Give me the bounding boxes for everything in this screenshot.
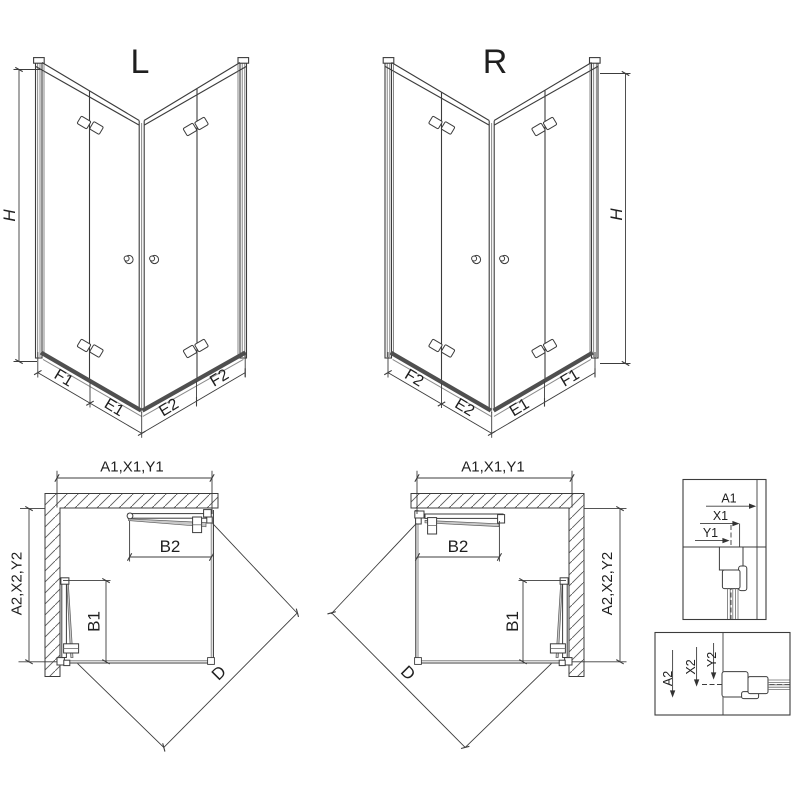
iso-view-left: L H F1 E1 E2 F2 — [0, 43, 249, 438]
iso-right-hinges — [428, 116, 557, 358]
plan-right-b2-label: B2 — [448, 537, 469, 556]
iso-view-right: R H F2 E2 E1 F1 — [383, 43, 630, 438]
iso-right-frame — [383, 58, 600, 417]
iso-left-hinges — [77, 116, 209, 358]
iso-right-title: R — [483, 43, 508, 81]
plan-left-b1-label: B1 — [85, 611, 104, 632]
plan-left-side-dim-label: A2,X2,Y2 — [9, 552, 26, 615]
plan-right-side-dim-label: A2,X2,Y2 — [599, 552, 616, 615]
detail-top-y1-label: Y1 — [703, 526, 718, 540]
detail-bottom-x2-label: X2 — [684, 659, 698, 674]
detail-bottom-a2-label: A2 — [661, 671, 675, 686]
detail-top-x1-label: X1 — [713, 509, 728, 523]
plan-left-top-dim-label: A1,X1,Y1 — [100, 458, 163, 475]
plan-view-right: A1,X1,Y1 A2,X2,Y2 B2 B1 D — [327, 458, 626, 748]
detail-box-top: A1 X1 Y1 — [683, 480, 766, 620]
shower-enclosure-technical-drawing: L H F1 E1 E2 F2 — [0, 0, 800, 800]
detail-bottom-y2-label: Y2 — [705, 652, 719, 667]
iso-left-height-label: H — [0, 209, 19, 222]
plan-right-diagonal-label: D — [397, 662, 419, 684]
plan-left-diagonal-label: D — [208, 662, 230, 684]
plan-right-enclosure — [415, 510, 569, 664]
plan-right-top-dim-label: A1,X1,Y1 — [461, 458, 524, 475]
plan-view-left: A1,X1,Y1 A2,X2,Y2 B2 B1 D — [9, 458, 299, 751]
detail-box-bottom: A2 X2 Y2 — [655, 633, 790, 716]
plan-left-b2-label: B2 — [160, 537, 181, 556]
iso-right-handles — [472, 255, 509, 263]
drawing-canvas: L H F1 E1 E2 F2 — [0, 0, 800, 800]
iso-left-frame — [34, 58, 249, 417]
detail-top-a1-label: A1 — [721, 492, 736, 506]
plan-left-dimensions — [19, 471, 299, 752]
plan-left-top-door — [127, 510, 212, 533]
plan-left-enclosure — [60, 510, 214, 664]
iso-left-title: L — [131, 43, 150, 81]
plan-right-b1-label: B1 — [503, 611, 522, 632]
iso-right-height-label: H — [607, 208, 626, 221]
plan-right-top-door — [415, 511, 505, 534]
